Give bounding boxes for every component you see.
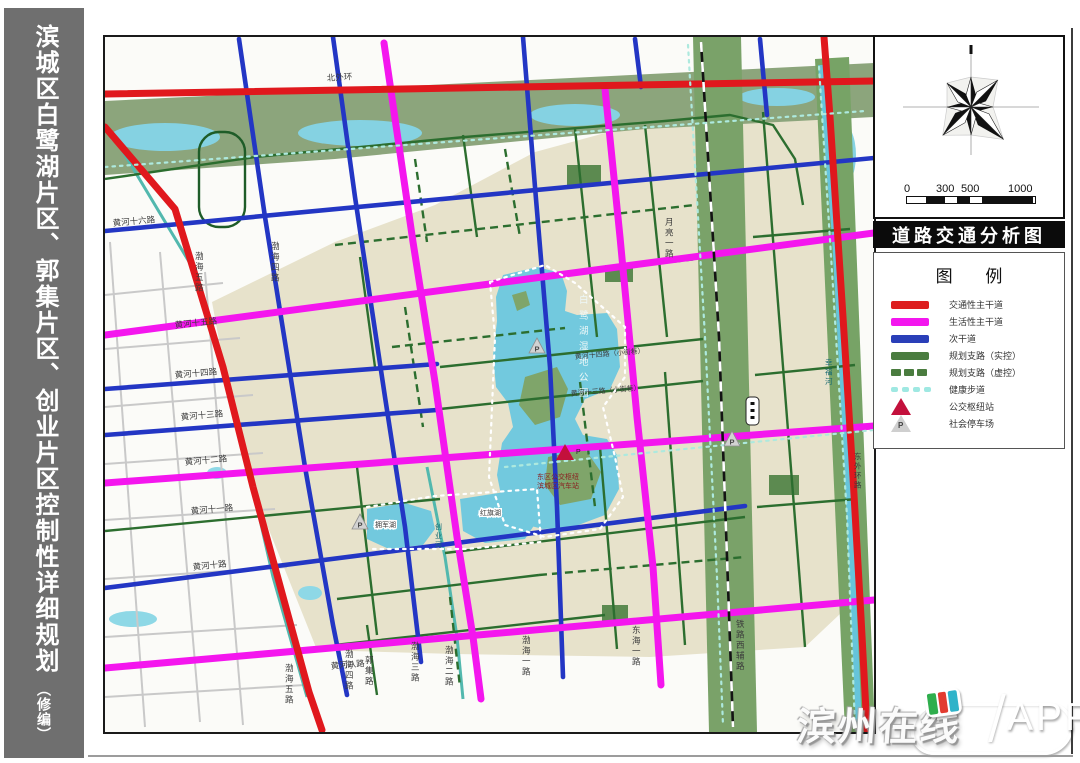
scale-segments <box>906 196 1036 204</box>
legend-item-label: 规划支路（实控） <box>949 349 1021 362</box>
plan-sheet: 滨城区白鹭湖片区、郭集片区、创业片区控制性详细规划 （修编） 北外环黄河十六路黄… <box>0 0 1080 763</box>
sheet-bottom-edge <box>88 755 1073 757</box>
scale-tick: 1000 <box>1008 183 1032 195</box>
scale-tick: 500 <box>961 183 979 195</box>
park-lake-4 <box>739 88 815 106</box>
legend-item-label: 生活性主干道 <box>949 315 1003 328</box>
map-label: 渤海四路 <box>345 649 354 691</box>
map-label: 渤海四路 <box>271 241 280 283</box>
legend-item-label: 社会停车场 <box>949 417 994 430</box>
legend-swatch-bar-icon <box>891 335 937 343</box>
scale-bar: 03005001000 <box>906 183 1036 209</box>
map-label: 白鹭湖湿地公园 <box>579 294 589 399</box>
map-label: 幸福河 <box>825 358 833 386</box>
scale-segment <box>970 197 982 203</box>
document-title: 滨城区白鹭湖片区、郭集片区、创业片区控制性详细规划 <box>32 24 56 674</box>
binzhou-online-logo-icon <box>923 687 962 719</box>
logo-stripe <box>948 690 960 712</box>
map-label: 郭集路 <box>365 655 374 686</box>
map-label: 东区公交枢纽 <box>537 472 579 481</box>
legend-swatch-bar-icon <box>891 301 937 309</box>
map-label: 渤海五路 <box>285 663 294 705</box>
map-label: 创业河 <box>435 522 442 549</box>
document-title-suffix: （修编） <box>37 682 51 742</box>
legend-swatch-trail-icon <box>891 387 937 392</box>
map-label: 拥军湖 <box>375 520 396 529</box>
scale-segment <box>926 197 945 203</box>
scale-tick: 300 <box>936 183 954 195</box>
legend-item-label: 健康步道 <box>949 383 985 396</box>
map-label: 滨城区汽车站 <box>537 481 579 490</box>
map-label: 北外环 <box>326 71 353 83</box>
legend-swatch-bar-icon <box>891 318 937 326</box>
legend-item: 次干道 <box>874 330 1064 347</box>
scale-segment <box>982 197 1033 203</box>
map-label: 铁路西辅路 <box>736 619 745 671</box>
legend-item-label: 规划支路（虚控） <box>949 366 1021 379</box>
scale-segment <box>957 197 970 203</box>
compass-box: 03005001000 <box>873 35 1065 219</box>
scale-segment <box>907 197 926 203</box>
sheet-right-edge <box>1071 28 1073 754</box>
parking-p-label: P <box>729 438 734 447</box>
legend-item: 规划支路（实控） <box>874 347 1064 364</box>
watermark-app-text: APP <box>1007 696 1080 740</box>
map-label: 渤海一路 <box>522 635 531 677</box>
legend-item-label: 公交枢纽站 <box>949 400 994 413</box>
north-tick-icon <box>970 45 973 54</box>
map-label: 东外环路 <box>854 451 862 490</box>
parking-p-label: P <box>534 345 539 354</box>
green-block-4 <box>769 475 799 495</box>
legend-item-label: 次干道 <box>949 332 976 345</box>
legend-swatch-bar-icon <box>891 352 937 360</box>
scale-tick: 0 <box>904 183 910 195</box>
legend-title: 图 例 <box>874 262 1064 287</box>
watermark: 滨州在线 APP <box>795 688 1077 758</box>
pond-west-1 <box>109 611 157 627</box>
bus-hub-p-label: P <box>576 449 581 456</box>
rail-station-tick <box>751 409 755 412</box>
legend-item: 公交枢纽站 <box>874 398 1064 415</box>
legend-item: P社会停车场 <box>874 415 1064 432</box>
legend-swatch-bar-dashed-icon <box>891 369 937 376</box>
map-canvas: 北外环黄河十六路黄河十五路黄河十四路黄河十三路黄河十二路黄河十一路黄河十路黄河八… <box>103 35 876 734</box>
pond-west-2 <box>298 586 322 600</box>
scale-numbers: 03005001000 <box>906 183 1036 196</box>
map-title-banner: 道路交通分析图 <box>873 221 1065 248</box>
green-block-1 <box>567 165 601 185</box>
logo-stripe <box>937 691 949 713</box>
legend-swatch-triangle-icon <box>891 398 937 415</box>
map-label: 红旗湖 <box>480 508 501 517</box>
parking-p-label: P <box>357 521 362 530</box>
rail-station-tick <box>751 402 755 405</box>
legend-rows: 交通性主干道生活性主干道次干道规划支路（实控）规划支路（虚控）健康步道公交枢纽站… <box>874 296 1064 432</box>
map-label: 渤海五路 <box>195 251 204 293</box>
compass-rose-icon <box>897 43 1045 161</box>
document-title-bar: 滨城区白鹭湖片区、郭集片区、创业片区控制性详细规划 （修编） <box>4 8 84 758</box>
map-label: 月亮一路 <box>665 217 674 259</box>
legend-item: 生活性主干道 <box>874 313 1064 330</box>
legend-item: 规划支路（虚控） <box>874 364 1064 381</box>
logo-stripe <box>927 693 939 715</box>
road-traffic-map: 北外环黄河十六路黄河十五路黄河十四路黄河十三路黄河十二路黄河十一路黄河十路黄河八… <box>105 37 874 732</box>
map-label: 渤海二路 <box>445 645 454 687</box>
map-label: 东海一路 <box>632 625 641 667</box>
legend-item: 健康步道 <box>874 381 1064 398</box>
rail-station-tick <box>751 416 755 419</box>
scale-segment <box>945 197 957 203</box>
legend-item: 交通性主干道 <box>874 296 1064 313</box>
legend-item-label: 交通性主干道 <box>949 298 1003 311</box>
map-label: 渤海三路 <box>411 641 420 683</box>
legend-box: 图 例 交通性主干道生活性主干道次干道规划支路（实控）规划支路（虚控）健康步道公… <box>873 252 1065 449</box>
legend-swatch-triangle-p-icon: P <box>891 415 937 432</box>
